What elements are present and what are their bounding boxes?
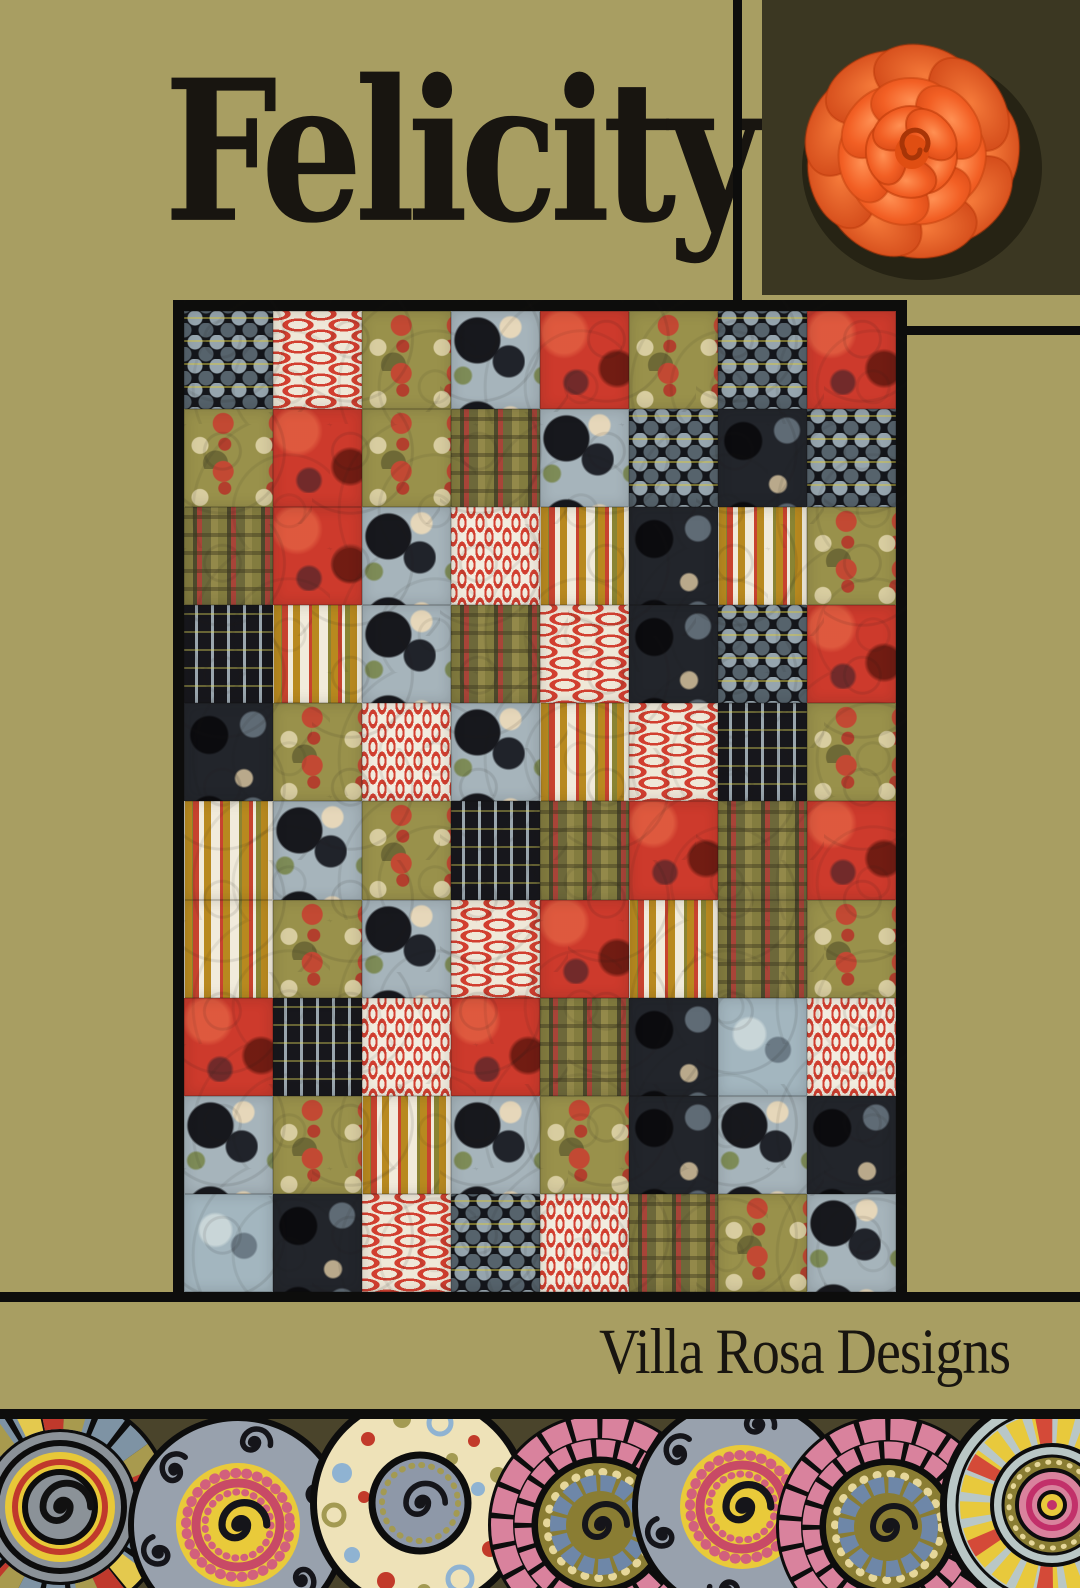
quilt-patch-dashv xyxy=(451,507,540,605)
border-fabric-band xyxy=(0,1419,1080,1588)
divider-right-line xyxy=(896,326,1080,335)
quilt-patch-glyph xyxy=(184,900,273,998)
quilt-patch-camo xyxy=(362,311,451,409)
divider-bottom-line-1 xyxy=(0,1292,1080,1302)
quilt-patch-plaid xyxy=(540,801,629,899)
quilt-photo xyxy=(173,300,907,1292)
circle-print-border xyxy=(0,1419,1080,1588)
quilt-patch-stripe xyxy=(718,703,807,801)
quilt-patch-stripe xyxy=(451,801,540,899)
quilt-patch-blue xyxy=(718,998,807,1096)
quilt-patch-camo xyxy=(540,1096,629,1194)
quilt-patch-scallop xyxy=(718,605,807,703)
quilt-patch-red xyxy=(451,998,540,1096)
quilt-patch-dark xyxy=(629,507,718,605)
quilt-patch-scallop xyxy=(718,311,807,409)
quilt-patch-dark xyxy=(807,1096,896,1194)
quilt-patch-dashv xyxy=(540,1194,629,1292)
quilt-patch-capsule xyxy=(629,703,718,801)
quilt-patch-glyph xyxy=(184,801,273,899)
quilt-patch-camo xyxy=(629,311,718,409)
quilt-patch-poppy xyxy=(451,311,540,409)
quilt-patch-glyph xyxy=(629,900,718,998)
quilt-patch-poppy xyxy=(273,801,362,899)
rose-photo-box xyxy=(762,0,1080,295)
quilt-patch-plaid xyxy=(718,801,807,899)
quilt-patch-blue xyxy=(184,1194,273,1292)
quilt-patch-dark xyxy=(629,998,718,1096)
quilt-patch-red xyxy=(273,507,362,605)
quilt-patch-capsule xyxy=(273,311,362,409)
quilt-patch-red xyxy=(807,311,896,409)
quilt-patch-poppy xyxy=(718,1096,807,1194)
quilt-patch-capsule xyxy=(362,1194,451,1292)
quilt-patch-poppy xyxy=(362,900,451,998)
quilt-patch-dark xyxy=(629,1096,718,1194)
quilt-patch-camo xyxy=(362,801,451,899)
quilt-patch-plaid xyxy=(451,409,540,507)
border-circle-spoke xyxy=(940,1419,1080,1588)
quilt-patch-plaid xyxy=(451,605,540,703)
quilt-patch-camo xyxy=(807,507,896,605)
quilt-patch-poppy xyxy=(362,507,451,605)
quilt-patch-dark xyxy=(273,1194,362,1292)
divider-vertical-line xyxy=(733,0,742,305)
quilt-patch-poppy xyxy=(451,1096,540,1194)
quilt-patch-capsule xyxy=(451,900,540,998)
quilt-patch-camo xyxy=(718,1194,807,1292)
quilt-patch-plaid xyxy=(629,1194,718,1292)
quilt-patch-poppy xyxy=(362,605,451,703)
quilt-patch-glyph xyxy=(540,703,629,801)
brand-name: Villa Rosa Designs xyxy=(599,1320,1010,1384)
quilt-patch-red xyxy=(807,801,896,899)
rose-image xyxy=(762,0,1080,295)
quilt-patch-red xyxy=(629,801,718,899)
quilt-patch-scallop xyxy=(629,409,718,507)
quilt-patch-stripe xyxy=(273,998,362,1096)
quilt-patch-dashv xyxy=(807,998,896,1096)
quilt-patch-scallop xyxy=(184,311,273,409)
quilt-patch-plaid xyxy=(184,507,273,605)
quilt-patch-dashv xyxy=(362,703,451,801)
quilt-patch-camo xyxy=(273,1096,362,1194)
quilt-patch-camo xyxy=(807,900,896,998)
quilt-patch-camo xyxy=(362,409,451,507)
quilt-patch-plaid xyxy=(718,900,807,998)
quilt-patch-red xyxy=(184,998,273,1096)
quilt-patch-dashv xyxy=(362,998,451,1096)
quilt-patch-stripe xyxy=(184,605,273,703)
page-title: Felicity xyxy=(164,54,753,249)
quilt-patch-poppy xyxy=(451,703,540,801)
quilt-patch-glyph xyxy=(362,1096,451,1194)
quilt-patch-dark xyxy=(718,409,807,507)
quilt-patch-glyph xyxy=(540,507,629,605)
quilt-patch-plaid xyxy=(540,998,629,1096)
quilt-patch-poppy xyxy=(807,1194,896,1292)
quilt-patch-red xyxy=(807,605,896,703)
divider-bottom-line-2 xyxy=(0,1409,1080,1419)
quilt-patch-camo xyxy=(273,900,362,998)
quilt-patch-camo xyxy=(184,409,273,507)
quilt-patch-scallop xyxy=(451,1194,540,1292)
quilt-patch-dark xyxy=(629,605,718,703)
quilt-patch-glyph xyxy=(718,507,807,605)
quilt-pattern-cover: Felicity xyxy=(0,0,1080,1588)
quilt-patch-red xyxy=(540,311,629,409)
quilt-patch-poppy xyxy=(540,409,629,507)
quilt-patch-poppy xyxy=(184,1096,273,1194)
quilt-patch-capsule xyxy=(540,605,629,703)
quilt-patch-camo xyxy=(807,703,896,801)
quilt-patch-scallop xyxy=(807,409,896,507)
quilt-patch-red xyxy=(540,900,629,998)
quilt-patch-camo xyxy=(273,703,362,801)
quilt-patch-dark xyxy=(184,703,273,801)
quilt-patchwork xyxy=(184,311,896,1292)
quilt-patch-glyph xyxy=(273,605,362,703)
quilt-patch-red xyxy=(273,409,362,507)
